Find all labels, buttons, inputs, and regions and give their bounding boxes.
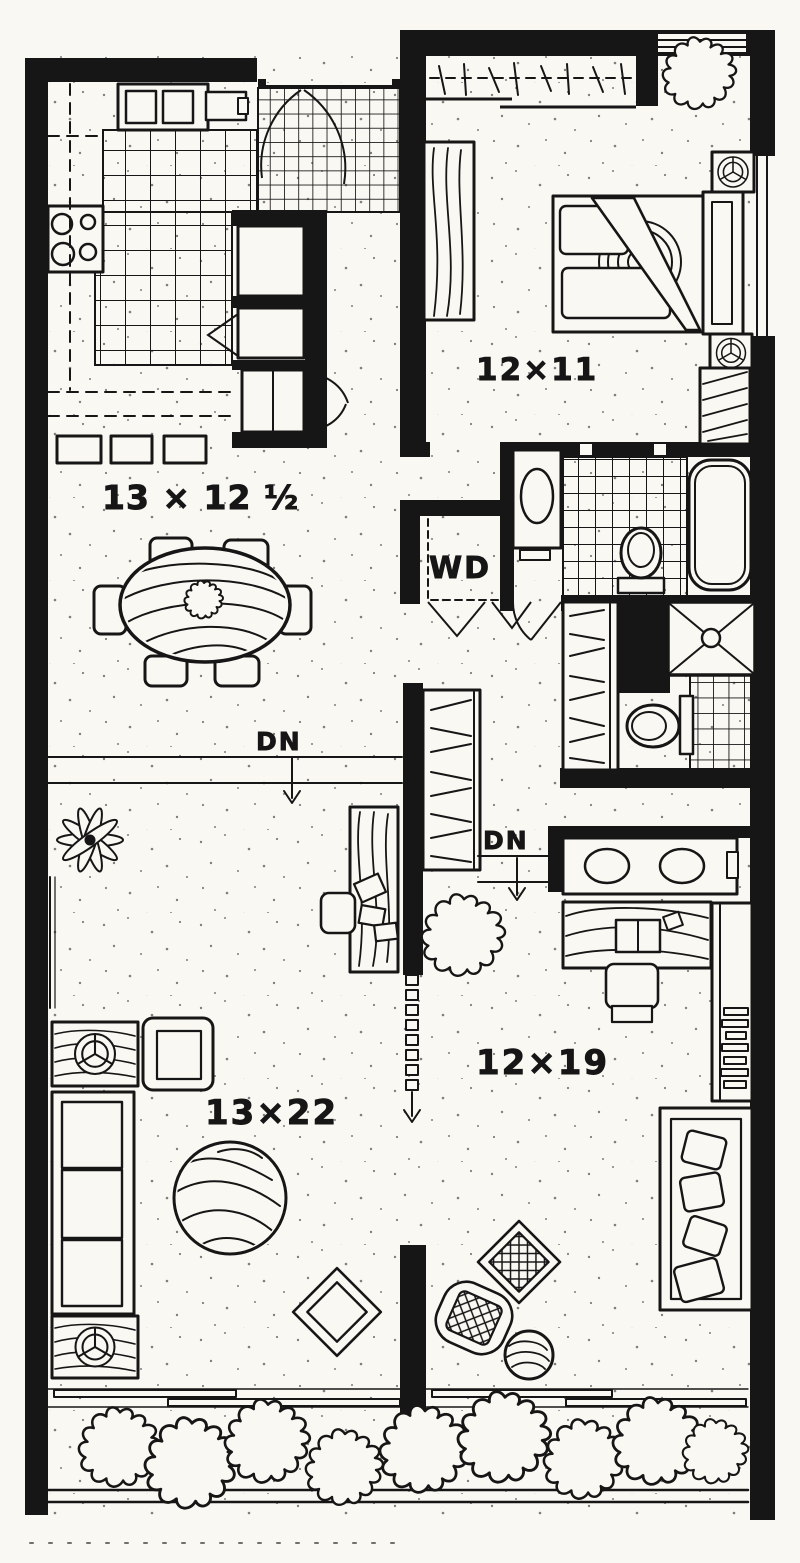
desk-chair	[606, 964, 658, 1008]
bookshelf	[712, 903, 752, 1101]
paper	[374, 923, 398, 942]
wall-closet-separator-1	[232, 296, 305, 308]
wall-closet-spine	[305, 210, 327, 448]
wall-entry-bedroom	[400, 54, 426, 444]
bathtub	[689, 460, 751, 590]
bedroom-dimension-label: 12×11	[476, 352, 598, 388]
stool	[57, 436, 101, 463]
desk-chair	[321, 893, 355, 933]
glass-panel	[54, 1390, 236, 1397]
bath-wall-jamb-1	[580, 444, 592, 455]
stair-closet	[423, 690, 480, 870]
wall-closets-top	[232, 210, 307, 226]
stove	[48, 206, 103, 272]
wall-stair-closet-left	[403, 683, 423, 975]
wall-den-stub	[548, 826, 562, 892]
kitchen-closet	[238, 308, 304, 358]
breakfast-stools	[57, 436, 206, 463]
table-lamp	[76, 1328, 115, 1367]
pillow	[679, 1172, 724, 1212]
sofa-cushion	[62, 1102, 122, 1168]
pantry-closet	[238, 226, 304, 296]
end-table-top	[52, 1022, 138, 1086]
sofa	[52, 1092, 134, 1314]
washer-dryer-label: WD	[429, 551, 491, 586]
nightstand-bottom	[710, 334, 752, 372]
floor-plan-drawing: 13 × 12 ½ 12×11 WD DN DN 13×22 12×19	[0, 0, 800, 1563]
wall-wd-left	[400, 500, 420, 604]
sofa-cushion	[62, 1240, 122, 1306]
linen-closet	[563, 602, 618, 770]
glass-panel	[168, 1399, 400, 1406]
toilet	[618, 528, 664, 593]
glass-panel	[432, 1390, 612, 1397]
wall-left	[25, 58, 48, 1515]
wall-closets-bottom	[232, 432, 307, 448]
floor-plan-page: 13 × 12 ½ 12×11 WD DN DN 13×22 12×19	[0, 0, 800, 1563]
dresser-tall	[424, 142, 474, 320]
armchair	[143, 1018, 213, 1090]
bath-wall-jamb-2	[654, 444, 666, 455]
nightstand-top	[712, 152, 754, 192]
wall-den-top	[548, 826, 752, 838]
headboard	[703, 192, 743, 334]
sofa-cushion	[62, 1170, 122, 1238]
stool	[164, 436, 206, 463]
entry-door-jamb-right	[392, 79, 400, 87]
den-dimension-label: 12×19	[476, 1043, 609, 1083]
living-dimension-label: 13×22	[205, 1093, 338, 1133]
wall-center-mass	[617, 597, 670, 693]
shower	[668, 602, 755, 675]
end-table-bottom	[52, 1316, 138, 1378]
hall-closets-bank	[238, 226, 304, 432]
dresser-low	[700, 368, 750, 444]
bed	[553, 192, 743, 334]
wall-closet-stub	[636, 54, 658, 106]
round-rug	[174, 1142, 286, 1254]
stool	[111, 436, 152, 463]
credenza	[563, 838, 738, 894]
vanity-sink	[513, 450, 561, 560]
wall-hall-jamb	[400, 442, 430, 457]
stairs-down-label-lower: DN	[483, 826, 529, 855]
stairs-down-label-upper: DN	[256, 727, 302, 756]
dining-dimension-label: 13 × 12 ½	[102, 478, 299, 517]
books	[721, 1008, 748, 1088]
chair-footrest	[612, 1006, 652, 1022]
daybed-sofa	[660, 1108, 752, 1310]
entry-door-jamb-left	[258, 79, 266, 87]
wall-kitchen-top	[25, 58, 257, 82]
side-table-round	[505, 1331, 553, 1379]
wall-bath-bottom-a	[500, 595, 513, 611]
table-lamp	[75, 1034, 115, 1074]
